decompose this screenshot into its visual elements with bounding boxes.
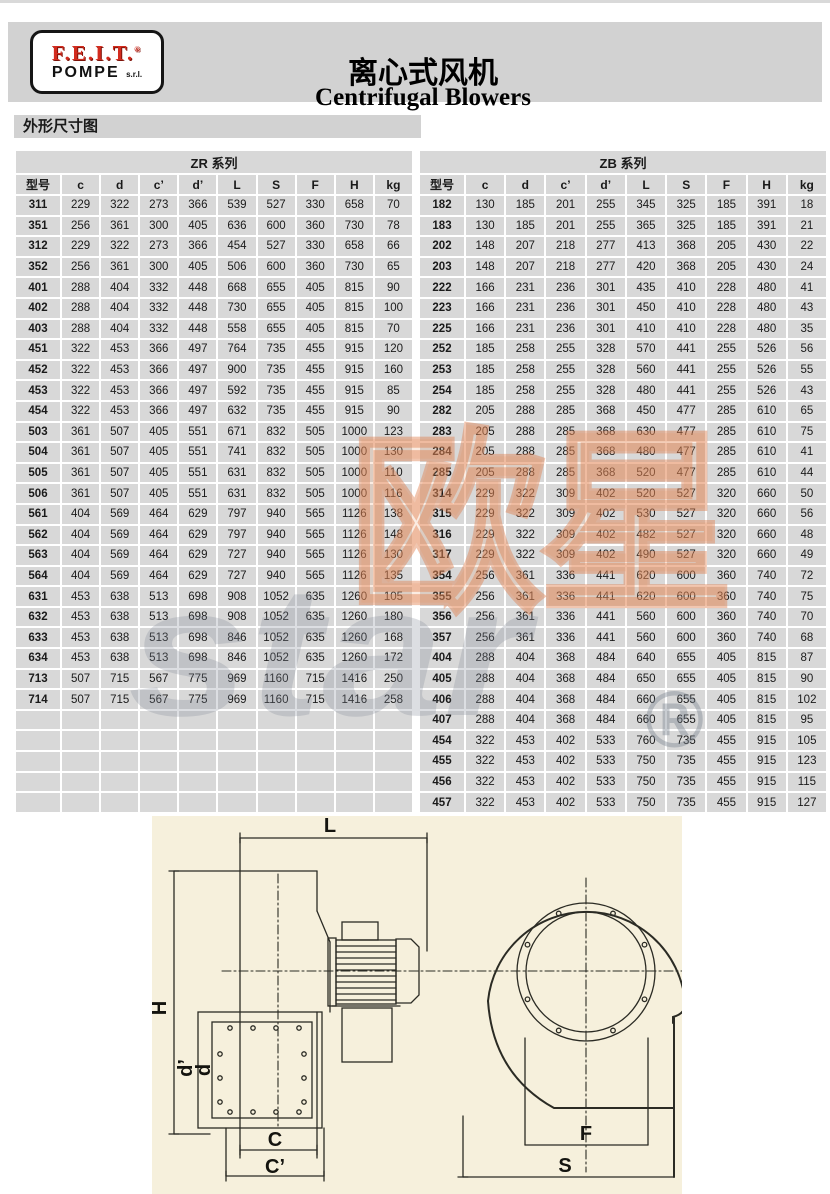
value-cell: 402 [587, 546, 625, 565]
value-cell: 78 [375, 217, 412, 236]
empty-cell [297, 711, 334, 730]
value-cell: 68 [788, 628, 826, 647]
model-cell: 352 [16, 258, 60, 277]
value-cell: 405 [297, 299, 334, 318]
value-cell: 366 [140, 340, 177, 359]
model-cell: 452 [16, 361, 60, 380]
value-cell: 507 [62, 670, 99, 689]
model-cell: 454 [16, 402, 60, 421]
value-cell: 366 [179, 237, 216, 256]
empty-cell [101, 793, 138, 812]
value-cell: 497 [179, 381, 216, 400]
value-cell: 102 [788, 690, 826, 709]
value-cell: 236 [546, 299, 584, 318]
value-cell: 410 [627, 320, 665, 339]
value-cell: 497 [179, 402, 216, 421]
value-cell: 1000 [336, 443, 373, 462]
value-cell: 527 [667, 546, 705, 565]
value-cell: 288 [506, 443, 544, 462]
value-cell: 413 [627, 237, 665, 256]
value-cell: 453 [506, 793, 544, 812]
value-cell: 482 [627, 526, 665, 545]
value-cell: 201 [546, 217, 584, 236]
value-cell: 368 [587, 402, 625, 421]
empty-cell [258, 793, 295, 812]
company-logo: F.E.I.T.® POMPE s.r.l. [30, 30, 164, 94]
value-cell: 301 [587, 320, 625, 339]
model-cell: 356 [420, 608, 464, 627]
value-cell: 750 [627, 752, 665, 771]
value-cell: 288 [506, 464, 544, 483]
value-cell: 322 [466, 752, 504, 771]
table-row: 18213018520125534532518539118 [420, 196, 826, 215]
value-cell: 368 [546, 690, 584, 709]
value-cell: 322 [466, 773, 504, 792]
table-row: 71350771556777596911607151416250 [16, 670, 412, 689]
value-cell: 551 [179, 423, 216, 442]
value-cell: 368 [667, 237, 705, 256]
value-cell: 90 [375, 402, 412, 421]
value-cell: 185 [707, 196, 745, 215]
table-row: 28520528828536852047728561044 [420, 464, 826, 483]
value-cell: 205 [707, 258, 745, 277]
value-cell: 336 [546, 608, 584, 627]
value-cell: 277 [587, 258, 625, 277]
column-header-row: 型号cdc’d’LSFHkg [420, 175, 826, 194]
value-cell: 635 [297, 649, 334, 668]
value-cell: 130 [375, 546, 412, 565]
col-header: c [62, 175, 99, 194]
value-cell: 301 [587, 299, 625, 318]
table-row: 35525636133644162060036074075 [420, 587, 826, 606]
value-cell: 322 [101, 237, 138, 256]
value-cell: 505 [297, 443, 334, 462]
model-cell: 453 [16, 381, 60, 400]
value-cell: 740 [748, 628, 786, 647]
table-row: 35625636133644156060036074070 [420, 608, 826, 627]
value-cell: 636 [218, 217, 255, 236]
value-cell: 405 [179, 217, 216, 236]
value-cell: 185 [506, 196, 544, 215]
value-cell: 551 [179, 443, 216, 462]
value-cell: 366 [140, 381, 177, 400]
value-cell: 940 [258, 505, 295, 524]
model-cell: 182 [420, 196, 464, 215]
empty-cell [258, 773, 295, 792]
table-row: 22216623123630143541022848041 [420, 278, 826, 297]
value-cell: 453 [62, 587, 99, 606]
value-cell: 361 [101, 258, 138, 277]
empty-cell [140, 731, 177, 750]
value-cell: 207 [506, 237, 544, 256]
table-row: 25218525825532857044125552656 [420, 340, 826, 359]
value-cell: 236 [546, 278, 584, 297]
value-cell: 513 [140, 649, 177, 668]
value-cell: 448 [179, 278, 216, 297]
value-cell: 453 [101, 381, 138, 400]
value-cell: 631 [218, 464, 255, 483]
col-header: L [218, 175, 255, 194]
value-cell: 130 [466, 196, 504, 215]
value-cell: 256 [466, 567, 504, 586]
value-cell: 610 [748, 464, 786, 483]
value-cell: 660 [627, 690, 665, 709]
value-cell: 185 [707, 217, 745, 236]
value-cell: 464 [140, 567, 177, 586]
value-cell: 18 [788, 196, 826, 215]
logo-sub-text: POMPE s.r.l. [33, 64, 161, 84]
table-row: 454322453402533760735455915105 [420, 731, 826, 750]
model-cell: 354 [420, 567, 464, 586]
value-cell: 567 [140, 670, 177, 689]
value-cell: 285 [707, 464, 745, 483]
value-cell: 450 [627, 299, 665, 318]
value-cell: 527 [667, 484, 705, 503]
col-header: d [506, 175, 544, 194]
value-cell: 285 [546, 464, 584, 483]
value-cell: 404 [506, 670, 544, 689]
col-header: d’ [179, 175, 216, 194]
model-cell: 317 [420, 546, 464, 565]
col-header: d [101, 175, 138, 194]
value-cell: 320 [707, 546, 745, 565]
value-cell: 285 [707, 443, 745, 462]
value-cell: 404 [62, 546, 99, 565]
value-cell: 565 [297, 567, 334, 586]
value-cell: 520 [627, 464, 665, 483]
value-cell: 288 [466, 670, 504, 689]
value-cell: 360 [707, 587, 745, 606]
model-cell: 282 [420, 402, 464, 421]
model-cell: 506 [16, 484, 60, 503]
value-cell: 1416 [336, 690, 373, 709]
value-cell: 229 [466, 526, 504, 545]
table-row: 31222932227336645452733065866 [16, 237, 412, 256]
value-cell: 405 [707, 670, 745, 689]
empty-cell [101, 752, 138, 771]
empty-cell [16, 773, 60, 792]
value-cell: 640 [627, 649, 665, 668]
value-cell: 915 [748, 752, 786, 771]
value-cell: 231 [506, 299, 544, 318]
value-cell: 600 [667, 587, 705, 606]
value-cell: 1160 [258, 690, 295, 709]
value-cell: 255 [587, 196, 625, 215]
table-row: 35225636130040550660036073065 [16, 258, 412, 277]
value-cell: 533 [587, 773, 625, 792]
empty-cell [16, 793, 60, 812]
value-cell: 610 [748, 443, 786, 462]
col-header: 型号 [16, 175, 60, 194]
zb-series-table: ZB 系列型号cdc’d’LSFHkg182130185201255345325… [418, 149, 828, 814]
empty-cell [101, 731, 138, 750]
value-cell: 735 [667, 752, 705, 771]
model-cell: 202 [420, 237, 464, 256]
value-cell: 560 [627, 628, 665, 647]
value-cell: 309 [546, 505, 584, 524]
value-cell: 127 [788, 793, 826, 812]
value-cell: 660 [748, 526, 786, 545]
value-cell: 715 [101, 690, 138, 709]
value-cell: 698 [179, 649, 216, 668]
value-cell: 915 [336, 340, 373, 359]
value-cell: 620 [627, 567, 665, 586]
value-cell: 455 [297, 340, 334, 359]
value-cell: 507 [101, 443, 138, 462]
value-cell: 366 [179, 196, 216, 215]
table-row: 22516623123630141041022848035 [420, 320, 826, 339]
empty-cell [62, 731, 99, 750]
value-cell: 231 [506, 278, 544, 297]
value-cell: 600 [258, 258, 295, 277]
value-cell: 255 [707, 340, 745, 359]
value-cell: 368 [587, 464, 625, 483]
value-cell: 322 [62, 381, 99, 400]
value-cell: 49 [788, 546, 826, 565]
model-cell: 183 [420, 217, 464, 236]
model-cell: 504 [16, 443, 60, 462]
col-header: F [297, 175, 334, 194]
col-header: H [748, 175, 786, 194]
table-row: 40428840436848464065540581587 [420, 649, 826, 668]
value-cell: 229 [62, 237, 99, 256]
value-cell: 735 [667, 793, 705, 812]
value-cell: 797 [218, 526, 255, 545]
value-cell: 735 [258, 361, 295, 380]
value-cell: 328 [587, 381, 625, 400]
value-cell: 309 [546, 526, 584, 545]
value-cell: 404 [506, 649, 544, 668]
value-cell: 135 [375, 567, 412, 586]
value-cell: 480 [748, 278, 786, 297]
empty-cell [375, 793, 412, 812]
table-row: 20214820721827741336820543022 [420, 237, 826, 256]
value-cell: 650 [627, 670, 665, 689]
model-cell: 714 [16, 690, 60, 709]
value-cell: 120 [375, 340, 412, 359]
model-cell: 503 [16, 423, 60, 442]
value-cell: 256 [466, 608, 504, 627]
value-cell: 600 [667, 628, 705, 647]
value-cell: 455 [707, 752, 745, 771]
model-cell: 564 [16, 567, 60, 586]
model-cell: 355 [420, 587, 464, 606]
value-cell: 258 [506, 361, 544, 380]
table-row: 40128840433244866865540581590 [16, 278, 412, 297]
value-cell: 185 [466, 340, 504, 359]
value-cell: 332 [140, 278, 177, 297]
value-cell: 915 [336, 381, 373, 400]
empty-cell [62, 752, 99, 771]
table-row: 35725636133644156060036074068 [420, 628, 826, 647]
value-cell: 526 [748, 361, 786, 380]
value-cell: 565 [297, 546, 334, 565]
value-cell: 228 [707, 320, 745, 339]
value-cell: 322 [62, 402, 99, 421]
value-cell: 420 [627, 258, 665, 277]
value-cell: 740 [748, 608, 786, 627]
model-cell: 312 [16, 237, 60, 256]
model-cell: 634 [16, 649, 60, 668]
value-cell: 740 [748, 567, 786, 586]
empty-cell [375, 731, 412, 750]
value-cell: 1260 [336, 628, 373, 647]
empty-cell [140, 752, 177, 771]
value-cell: 368 [587, 423, 625, 442]
model-cell: 283 [420, 423, 464, 442]
value-cell: 22 [788, 237, 826, 256]
model-cell: 451 [16, 340, 60, 359]
table-row: 5614045694646297979405651126138 [16, 505, 412, 524]
value-cell: 832 [258, 484, 295, 503]
col-header: H [336, 175, 373, 194]
empty-cell [179, 773, 216, 792]
table-row: 31422932230940252052732066050 [420, 484, 826, 503]
empty-cell [336, 731, 373, 750]
value-cell: 455 [297, 402, 334, 421]
value-cell: 610 [748, 423, 786, 442]
col-header: S [667, 175, 705, 194]
value-cell: 797 [218, 505, 255, 524]
empty-cell [297, 793, 334, 812]
value-cell: 565 [297, 526, 334, 545]
value-cell: 205 [466, 423, 504, 442]
value-cell: 527 [258, 196, 295, 215]
value-cell: 166 [466, 299, 504, 318]
value-cell: 455 [707, 773, 745, 792]
value-cell: 1260 [336, 649, 373, 668]
value-cell: 258 [506, 381, 544, 400]
value-cell: 336 [546, 587, 584, 606]
model-cell: 402 [16, 299, 60, 318]
empty-row [16, 793, 412, 812]
empty-cell [62, 711, 99, 730]
value-cell: 441 [587, 587, 625, 606]
value-cell: 735 [258, 340, 295, 359]
table-row: 35125636130040563660036073078 [16, 217, 412, 236]
value-cell: 256 [466, 628, 504, 647]
table-row: 25418525825532848044125552643 [420, 381, 826, 400]
value-cell: 410 [667, 320, 705, 339]
value-cell: 1000 [336, 484, 373, 503]
empty-cell [218, 773, 255, 792]
value-cell: 730 [336, 258, 373, 277]
column-header-row: 型号cdc’d’LSFHkg [16, 175, 412, 194]
zr-series-table: ZR 系列型号cdc’d’LSFHkg311229322273366539527… [14, 149, 414, 814]
value-cell: 490 [627, 546, 665, 565]
value-cell: 632 [218, 402, 255, 421]
value-cell: 940 [258, 526, 295, 545]
value-cell: 185 [506, 217, 544, 236]
value-cell: 969 [218, 690, 255, 709]
value-cell: 105 [788, 731, 826, 750]
value-cell: 366 [140, 361, 177, 380]
dim-label-F: F [580, 1123, 592, 1145]
empty-cell [16, 752, 60, 771]
model-cell: 563 [16, 546, 60, 565]
value-cell: 750 [627, 773, 665, 792]
model-cell: 284 [420, 443, 464, 462]
top-edge-line [0, 0, 830, 3]
value-cell: 288 [62, 278, 99, 297]
value-cell: 218 [546, 237, 584, 256]
value-cell: 727 [218, 567, 255, 586]
value-cell: 635 [297, 608, 334, 627]
value-cell: 1000 [336, 464, 373, 483]
model-cell: 253 [420, 361, 464, 380]
value-cell: 1052 [258, 587, 295, 606]
value-cell: 477 [667, 423, 705, 442]
model-cell: 404 [420, 649, 464, 668]
value-cell: 322 [506, 546, 544, 565]
table-row: 35425636133644162060036074072 [420, 567, 826, 586]
value-cell: 218 [546, 258, 584, 277]
table-row: 63445363851369884610526351260172 [16, 649, 412, 668]
value-cell: 405 [140, 443, 177, 462]
table-row: 18313018520125536532518539121 [420, 217, 826, 236]
col-header: F [707, 175, 745, 194]
table-row: 31522932230940253052732066056 [420, 505, 826, 524]
value-cell: 764 [218, 340, 255, 359]
value-cell: 671 [218, 423, 255, 442]
value-cell: 832 [258, 443, 295, 462]
value-cell: 361 [506, 587, 544, 606]
value-cell: 569 [101, 567, 138, 586]
value-cell: 288 [466, 711, 504, 730]
value-cell: 513 [140, 587, 177, 606]
model-cell: 407 [420, 711, 464, 730]
model-cell: 405 [420, 670, 464, 689]
value-cell: 361 [506, 608, 544, 627]
value-cell: 735 [258, 381, 295, 400]
table-row: 402288404332448730655405815100 [16, 299, 412, 318]
value-cell: 236 [546, 320, 584, 339]
model-cell: 403 [16, 320, 60, 339]
value-cell: 255 [546, 381, 584, 400]
value-cell: 629 [179, 567, 216, 586]
value-cell: 453 [101, 402, 138, 421]
value-cell: 65 [788, 402, 826, 421]
model-cell: 316 [420, 526, 464, 545]
model-cell: 222 [420, 278, 464, 297]
value-cell: 698 [179, 628, 216, 647]
value-cell: 497 [179, 340, 216, 359]
value-cell: 610 [748, 402, 786, 421]
value-cell: 730 [336, 217, 373, 236]
value-cell: 668 [218, 278, 255, 297]
value-cell: 404 [101, 299, 138, 318]
value-cell: 361 [62, 443, 99, 462]
value-cell: 300 [140, 258, 177, 277]
value-cell: 592 [218, 381, 255, 400]
value-cell: 484 [587, 670, 625, 689]
value-cell: 368 [546, 711, 584, 730]
col-header: c [466, 175, 504, 194]
value-cell: 570 [627, 340, 665, 359]
col-header: L [627, 175, 665, 194]
value-cell: 322 [466, 731, 504, 750]
table-row: 451322453366497764735455915120 [16, 340, 412, 359]
value-cell: 735 [258, 402, 295, 421]
value-cell: 229 [466, 484, 504, 503]
value-cell: 629 [179, 526, 216, 545]
value-cell: 727 [218, 546, 255, 565]
value-cell: 255 [707, 361, 745, 380]
model-cell: 225 [420, 320, 464, 339]
value-cell: 360 [707, 608, 745, 627]
value-cell: 484 [587, 690, 625, 709]
model-cell: 713 [16, 670, 60, 689]
